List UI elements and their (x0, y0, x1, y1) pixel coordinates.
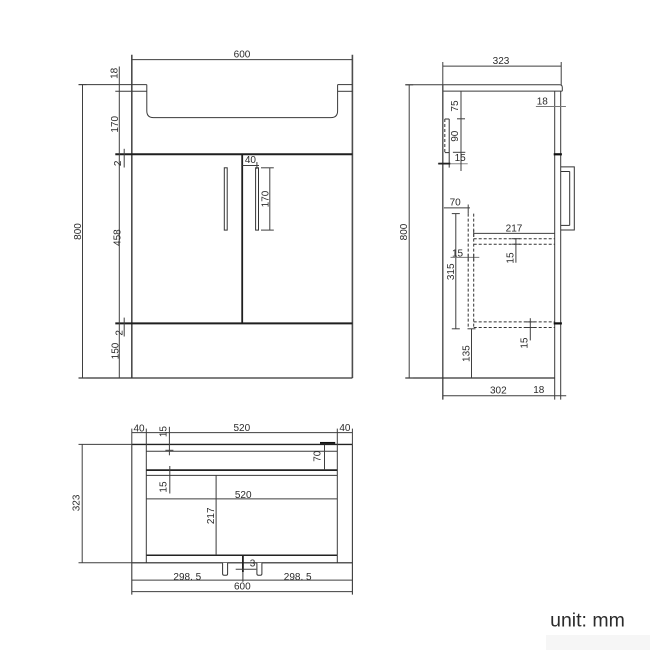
svg-text:600: 600 (234, 49, 251, 60)
svg-text:2: 2 (113, 160, 124, 166)
svg-text:40: 40 (245, 155, 257, 166)
svg-text:170: 170 (110, 116, 121, 133)
svg-text:3: 3 (250, 559, 256, 570)
svg-text:15: 15 (158, 426, 169, 438)
svg-text:70: 70 (313, 450, 324, 462)
svg-text:520: 520 (233, 423, 250, 434)
svg-text:520: 520 (235, 490, 252, 501)
svg-text:15: 15 (452, 249, 464, 260)
svg-text:90: 90 (450, 130, 461, 142)
svg-text:323: 323 (72, 494, 83, 511)
svg-text:315: 315 (446, 263, 457, 280)
svg-text:15: 15 (158, 481, 169, 493)
svg-text:302: 302 (490, 385, 507, 396)
svg-text:40: 40 (339, 423, 351, 434)
svg-text:600: 600 (234, 582, 251, 593)
svg-text:unit: mm: unit: mm (550, 610, 625, 632)
svg-text:150: 150 (111, 342, 122, 359)
svg-text:298. 5: 298. 5 (284, 572, 312, 583)
svg-text:18: 18 (533, 385, 545, 396)
svg-text:458: 458 (112, 229, 123, 246)
svg-text:18: 18 (110, 67, 121, 79)
svg-text:217: 217 (206, 507, 217, 524)
svg-text:800: 800 (73, 223, 84, 240)
svg-text:2: 2 (115, 330, 126, 336)
svg-text:298. 5: 298. 5 (173, 572, 201, 583)
svg-text:170: 170 (260, 190, 271, 207)
svg-text:135: 135 (462, 345, 473, 362)
svg-text:15: 15 (505, 252, 516, 264)
svg-text:18: 18 (537, 96, 549, 107)
svg-text:15: 15 (519, 337, 530, 349)
svg-text:75: 75 (450, 100, 461, 112)
svg-text:70: 70 (450, 198, 462, 209)
svg-text:40: 40 (133, 424, 145, 435)
svg-text:217: 217 (506, 224, 523, 235)
svg-text:15: 15 (455, 153, 467, 164)
svg-text:800: 800 (399, 223, 410, 240)
svg-text:323: 323 (493, 56, 510, 67)
